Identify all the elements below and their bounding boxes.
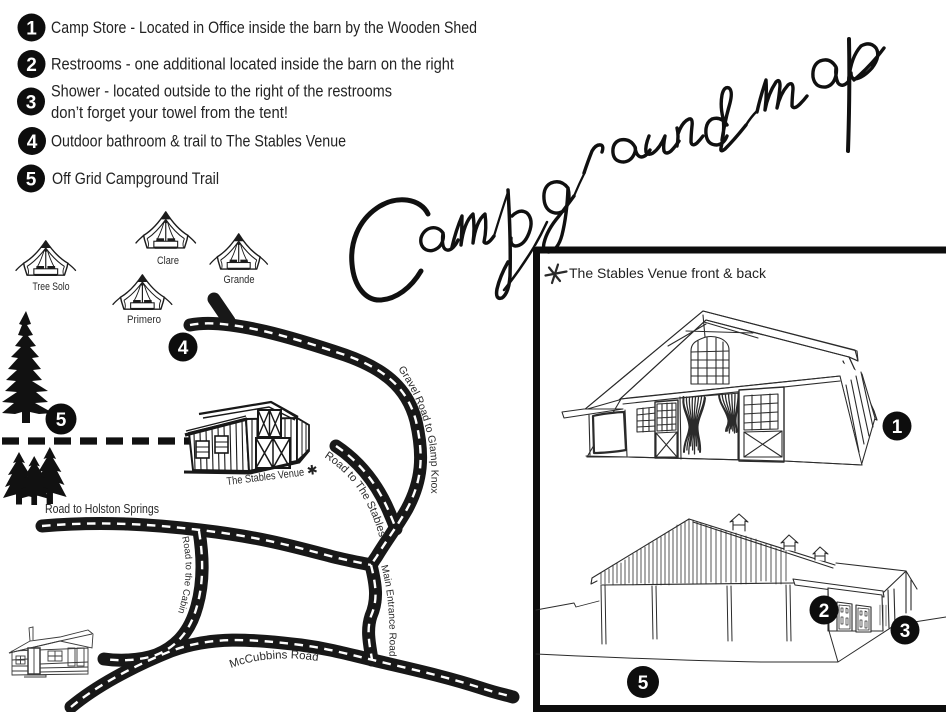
svg-text:3: 3 bbox=[900, 621, 911, 642]
svg-text:5: 5 bbox=[638, 673, 649, 694]
svg-text:4: 4 bbox=[27, 132, 38, 153]
svg-text:Restrooms - one additional loc: Restrooms - one additional located insid… bbox=[51, 56, 454, 74]
svg-text:Clare: Clare bbox=[157, 255, 179, 267]
svg-text:2: 2 bbox=[26, 55, 37, 76]
svg-text:The Stables Venue front & back: The Stables Venue front & back bbox=[569, 265, 767, 281]
svg-text:3: 3 bbox=[26, 93, 37, 114]
svg-text:5: 5 bbox=[56, 410, 67, 431]
svg-text:4: 4 bbox=[178, 338, 189, 359]
svg-text:Outdoor bathroom & trail to Th: Outdoor bathroom & trail to The Stables … bbox=[51, 133, 346, 151]
svg-text:Road to Holston Springs: Road to Holston Springs bbox=[45, 502, 159, 516]
svg-text:don’t forget your towel from t: don’t forget your towel from the tent! bbox=[51, 104, 288, 122]
svg-text:Primero: Primero bbox=[127, 314, 161, 326]
svg-text:Camp Store - Located in Office: Camp Store - Located in Office inside th… bbox=[51, 19, 477, 37]
svg-text:5: 5 bbox=[26, 170, 37, 191]
svg-text:1: 1 bbox=[892, 417, 903, 438]
svg-text:Tree Solo: Tree Solo bbox=[33, 281, 70, 293]
svg-text:Shower - located outside to th: Shower - located outside to the right of… bbox=[51, 83, 392, 101]
svg-text:2: 2 bbox=[819, 601, 830, 622]
svg-text:1: 1 bbox=[26, 19, 37, 40]
svg-text:Grande: Grande bbox=[224, 274, 255, 286]
svg-text:✱: ✱ bbox=[306, 462, 319, 478]
svg-text:Off Grid Campground Trail: Off Grid Campground Trail bbox=[52, 170, 219, 188]
